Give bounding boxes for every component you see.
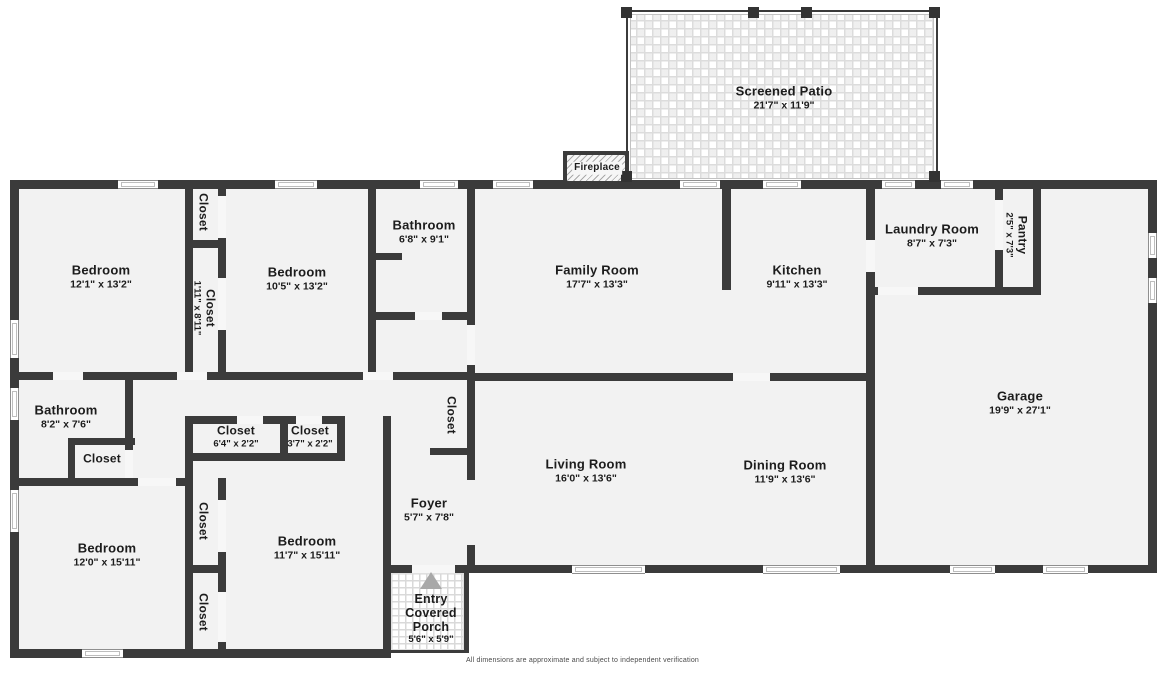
room-name: Bathroom xyxy=(35,402,98,418)
door-opening xyxy=(218,278,226,330)
entry-arrow-icon xyxy=(420,572,442,589)
wall xyxy=(464,573,469,653)
room-label-fireplace: Fireplace xyxy=(572,162,622,175)
wall xyxy=(68,438,135,445)
room-name: Closet xyxy=(83,452,121,467)
room-label-closet-2: Closet1'11" x 8'11" xyxy=(191,281,218,336)
room-label-family-room: Family Room17'7" x 13'3" xyxy=(555,262,639,291)
window xyxy=(950,565,995,574)
wall xyxy=(185,453,345,461)
room-label-closet-5: Closet6'4" x 2'2" xyxy=(213,424,258,451)
wall xyxy=(467,545,475,573)
door-opening xyxy=(218,500,226,552)
room-dimensions: 16'0" x 13'6" xyxy=(546,473,627,486)
wall xyxy=(430,448,470,455)
room-name: Fireplace xyxy=(572,162,622,175)
room-label-living-room: Living Room16'0" x 13'6" xyxy=(546,456,627,485)
room-label-covered-porch: Covered Porch5'6" x 5'9" xyxy=(398,606,464,646)
window xyxy=(420,180,458,189)
room-name: Closet xyxy=(213,424,258,439)
window xyxy=(118,180,158,189)
room-label-foyer: Foyer5'7" x 7'8" xyxy=(404,495,454,524)
room-name: Laundry Room xyxy=(885,221,979,237)
room-name: Pantry xyxy=(1014,212,1029,257)
room-dimensions: 12'0" x 15'11" xyxy=(74,557,141,570)
room-name: Closet xyxy=(444,396,459,434)
window xyxy=(941,180,973,189)
room-name: Dining Room xyxy=(743,457,826,473)
room-dimensions: 8'2" x 7'6" xyxy=(35,419,98,432)
room-dimensions: 2'5" x 7'3" xyxy=(1003,212,1015,257)
door-opening xyxy=(415,312,442,320)
door-opening xyxy=(138,478,176,486)
window xyxy=(10,388,19,420)
room-label-laundry-room: Laundry Room8'7" x 7'3" xyxy=(885,221,979,250)
room-label-closet-7: Closet xyxy=(196,502,211,540)
room-name: Bedroom xyxy=(70,262,132,278)
room-label-closet-6: Closet3'7" x 2'2" xyxy=(287,424,332,451)
patio-post xyxy=(621,171,632,182)
window xyxy=(1148,278,1157,303)
room-dimensions: 5'6" x 5'9" xyxy=(398,635,464,646)
door-opening xyxy=(218,196,226,238)
wall xyxy=(185,565,226,573)
wall xyxy=(475,373,866,381)
door-opening xyxy=(866,240,875,272)
room-dimensions: 8'7" x 7'3" xyxy=(885,238,979,251)
floor-plan-image: All dimensions are approximate and subje… xyxy=(0,0,1165,674)
room-label-bedroom-3: Bedroom12'0" x 15'11" xyxy=(74,540,141,569)
door-opening xyxy=(53,372,83,380)
patio-post xyxy=(929,171,940,182)
room-name: Closet xyxy=(196,502,211,540)
door-opening xyxy=(878,287,918,295)
room-dimensions: 6'4" x 2'2" xyxy=(213,439,258,451)
wall xyxy=(467,373,475,480)
room-dimensions: 12'1" x 13'2" xyxy=(70,279,132,292)
room-label-closet-4: Closet xyxy=(83,452,121,467)
room-label-bedroom-1: Bedroom12'1" x 13'2" xyxy=(70,262,132,291)
room-dimensions: 1'11" x 8'11" xyxy=(191,281,203,336)
wall xyxy=(386,573,391,653)
room-name: Closet xyxy=(202,281,217,336)
door-opening xyxy=(177,372,207,380)
room-label-bathroom-1: Bathroom6'8" x 9'1" xyxy=(393,217,456,246)
wall xyxy=(368,185,376,377)
window xyxy=(275,180,317,189)
room-name: Kitchen xyxy=(766,262,827,278)
patio-post xyxy=(929,7,940,18)
room-label-closet-8: Closet xyxy=(196,593,211,631)
wall xyxy=(1033,185,1041,295)
room-label-kitchen: Kitchen9'11" x 13'3" xyxy=(766,262,827,291)
room-dimensions: 5'7" x 7'8" xyxy=(404,512,454,525)
room-name: Screened Patio xyxy=(736,83,833,99)
door-opening xyxy=(125,450,133,478)
window xyxy=(572,565,645,574)
room-dimensions: 6'8" x 9'1" xyxy=(393,234,456,247)
room-name: Garage xyxy=(989,388,1051,404)
wall xyxy=(372,253,402,260)
room-name: Closet xyxy=(287,424,332,439)
window xyxy=(763,180,801,189)
window xyxy=(763,565,840,574)
room-dimensions: 3'7" x 2'2" xyxy=(287,439,332,451)
room-dimensions: 11'7" x 15'11" xyxy=(274,550,340,563)
room-dimensions: 21'7" x 11'9" xyxy=(736,100,833,113)
door-opening xyxy=(363,372,393,380)
window xyxy=(10,320,19,358)
room-name: Closet xyxy=(196,193,211,231)
patio-post xyxy=(621,7,632,18)
door-opening xyxy=(467,325,475,365)
room-dimensions: 17'7" x 13'3" xyxy=(555,279,639,292)
room-label-garage: Garage19'9" x 27'1" xyxy=(989,388,1051,417)
room-dimensions: 9'11" x 13'3" xyxy=(766,279,827,292)
window xyxy=(1043,565,1088,574)
patio-post xyxy=(801,7,812,18)
room-label-bedroom-4: Bedroom11'7" x 15'11" xyxy=(274,533,340,562)
room-label-screened-patio: Screened Patio21'7" x 11'9" xyxy=(736,83,833,112)
wall xyxy=(722,185,731,290)
window xyxy=(493,180,533,189)
room-name: Bedroom xyxy=(274,533,340,549)
window xyxy=(882,180,915,189)
room-label-bedroom-2: Bedroom10'5" x 13'2" xyxy=(266,264,328,293)
room-name: Bedroom xyxy=(266,264,328,280)
room-dimensions: 19'9" x 27'1" xyxy=(989,405,1051,418)
room-name: Closet xyxy=(196,593,211,631)
wall xyxy=(185,240,226,248)
room-name: Bathroom xyxy=(393,217,456,233)
room-dimensions: 11'9" x 13'6" xyxy=(743,474,826,487)
room-label-pantry: Pantry2'5" x 7'3" xyxy=(1003,212,1030,257)
wall xyxy=(68,438,75,486)
disclaimer-text: All dimensions are approximate and subje… xyxy=(0,657,1165,664)
room-name: Family Room xyxy=(555,262,639,278)
room-label-closet-3: Closet xyxy=(444,396,459,434)
room-label-dining-room: Dining Room11'9" x 13'6" xyxy=(743,457,826,486)
door-opening xyxy=(733,373,770,381)
wall xyxy=(388,650,467,653)
room-label-closet-1: Closet xyxy=(196,193,211,231)
room-name: Living Room xyxy=(546,456,627,472)
window xyxy=(680,180,720,189)
window xyxy=(10,490,19,532)
room-name: Foyer xyxy=(404,495,454,511)
room-name: Bedroom xyxy=(74,540,141,556)
room-label-bathroom-2: Bathroom8'2" x 7'6" xyxy=(35,402,98,431)
window xyxy=(1148,233,1157,258)
door-opening xyxy=(218,592,226,642)
room-dimensions: 10'5" x 13'2" xyxy=(266,281,328,294)
patio-post xyxy=(748,7,759,18)
room-name: Covered Porch xyxy=(398,606,464,635)
